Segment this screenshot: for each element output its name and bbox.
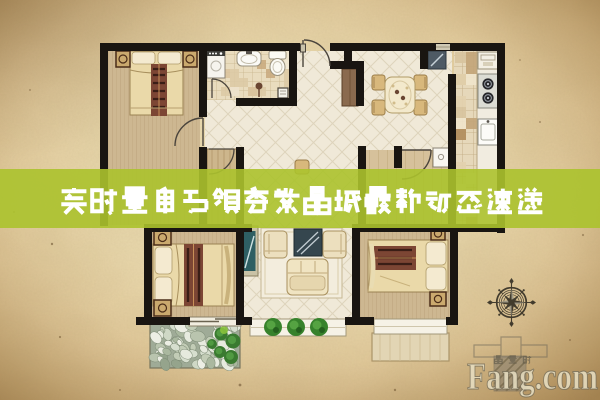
svg-text:Fang.com: Fang.com <box>467 356 598 398</box>
